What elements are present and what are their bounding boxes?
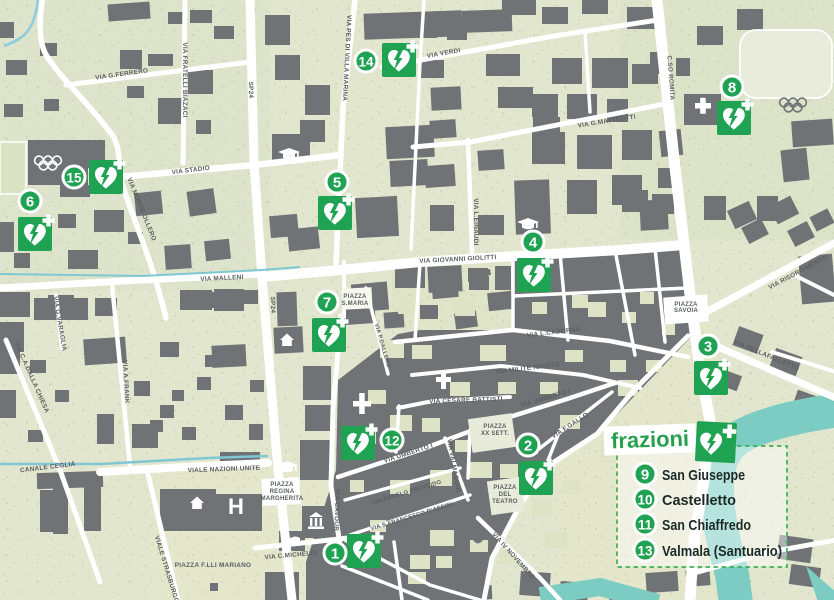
svg-text:DEL: DEL: [499, 492, 512, 498]
svg-text:MARGHERITA: MARGHERITA: [261, 496, 304, 502]
svg-text:10: 10: [637, 493, 652, 508]
svg-text:TEATRO: TEATRO: [492, 499, 518, 505]
svg-text:13: 13: [637, 544, 653, 559]
svg-text:San Giuseppe: San Giuseppe: [662, 467, 745, 484]
svg-text:VIA CAVOUR: VIA CAVOUR: [332, 489, 340, 531]
svg-text:San Chiaffredo: San Chiaffredo: [662, 517, 751, 534]
svg-text:PIAZZA F.LLI MARIANO: PIAZZA F.LLI MARIANO: [175, 562, 251, 569]
svg-text:5: 5: [333, 175, 341, 192]
svg-text:8: 8: [728, 80, 736, 97]
svg-text:PIAZZA: PIAZZA: [343, 294, 367, 300]
svg-text:VIA L.EINAUDI: VIA L.EINAUDI: [472, 198, 479, 245]
svg-text:frazioni: frazioni: [611, 426, 690, 454]
svg-text:2: 2: [524, 438, 532, 455]
svg-text:VIA FRATELLI BIAZACI: VIA FRATELLI BIAZACI: [181, 42, 188, 117]
svg-text:4: 4: [529, 235, 538, 252]
svg-text:Castelletto: Castelletto: [662, 492, 736, 509]
svg-text:S.MARIA: S.MARIA: [341, 301, 369, 307]
svg-text:6: 6: [26, 194, 34, 211]
svg-text:PIAZZA: PIAZZA: [483, 424, 507, 430]
svg-text:Valmala (Santuario): Valmala (Santuario): [662, 543, 782, 560]
svg-text:SAVOIA: SAVOIA: [674, 308, 698, 314]
svg-text:9: 9: [641, 467, 649, 484]
svg-text:12: 12: [384, 434, 399, 449]
svg-text:1: 1: [331, 546, 339, 563]
svg-text:PIAZZA: PIAZZA: [493, 485, 517, 491]
svg-text:11: 11: [638, 518, 653, 533]
svg-text:7: 7: [323, 295, 331, 312]
svg-text:REGINA: REGINA: [270, 489, 295, 495]
svg-text:SP24: SP24: [269, 297, 277, 314]
svg-text:15: 15: [66, 171, 82, 186]
svg-text:PIAZZA: PIAZZA: [270, 482, 294, 488]
svg-text:XX SETT.: XX SETT.: [481, 431, 509, 437]
svg-text:3: 3: [704, 339, 712, 356]
svg-text:SP24: SP24: [247, 82, 255, 99]
svg-text:14: 14: [358, 55, 374, 70]
svg-text:H: H: [228, 494, 244, 519]
